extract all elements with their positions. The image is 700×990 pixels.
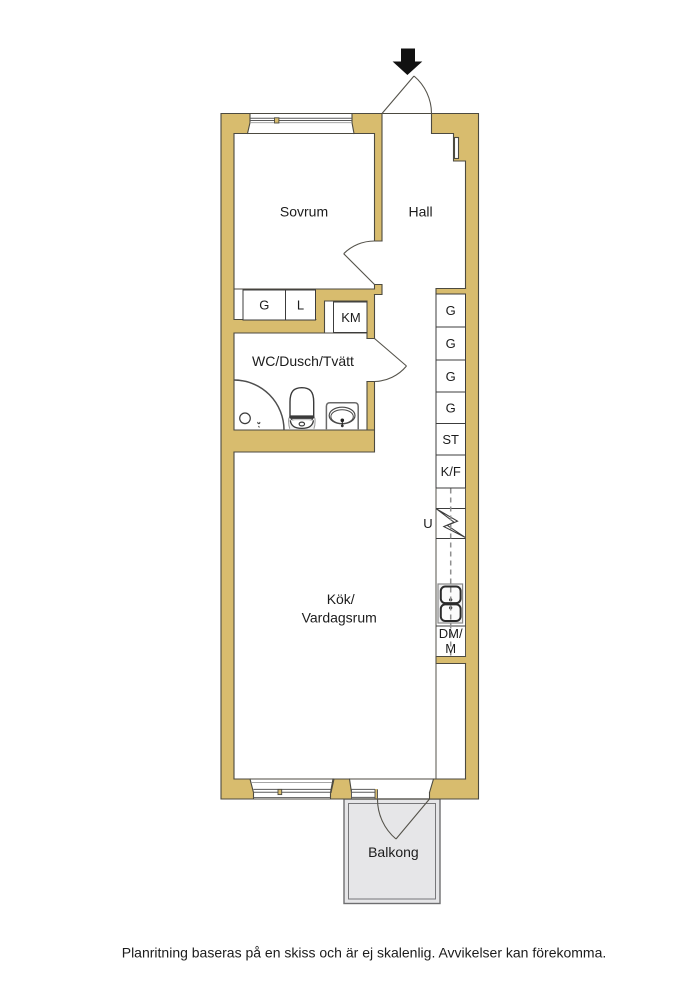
- svg-text:G: G: [446, 303, 456, 318]
- svg-text:Hall: Hall: [409, 203, 433, 219]
- svg-text:G: G: [446, 369, 456, 384]
- svg-text:Sovrum: Sovrum: [280, 203, 328, 219]
- svg-text:G: G: [446, 400, 456, 415]
- svg-text:Kök/: Kök/: [327, 591, 355, 607]
- svg-text:M: M: [445, 641, 456, 656]
- svg-text:Balkong: Balkong: [368, 844, 419, 860]
- svg-text:KM: KM: [341, 310, 361, 325]
- svg-text:DM/: DM/: [439, 626, 463, 641]
- svg-text:Planritning baseras på en skis: Planritning baseras på en skiss och är e…: [122, 945, 607, 961]
- svg-text:WC/Dusch/Tvätt: WC/Dusch/Tvätt: [252, 353, 354, 369]
- svg-text:G: G: [259, 298, 269, 313]
- svg-text:L: L: [297, 298, 304, 313]
- svg-text:ST: ST: [442, 432, 459, 447]
- svg-text:U: U: [423, 516, 432, 531]
- svg-text:K/F: K/F: [441, 464, 461, 479]
- svg-text:Vardagsrum: Vardagsrum: [302, 610, 377, 626]
- svg-text:G: G: [446, 336, 456, 351]
